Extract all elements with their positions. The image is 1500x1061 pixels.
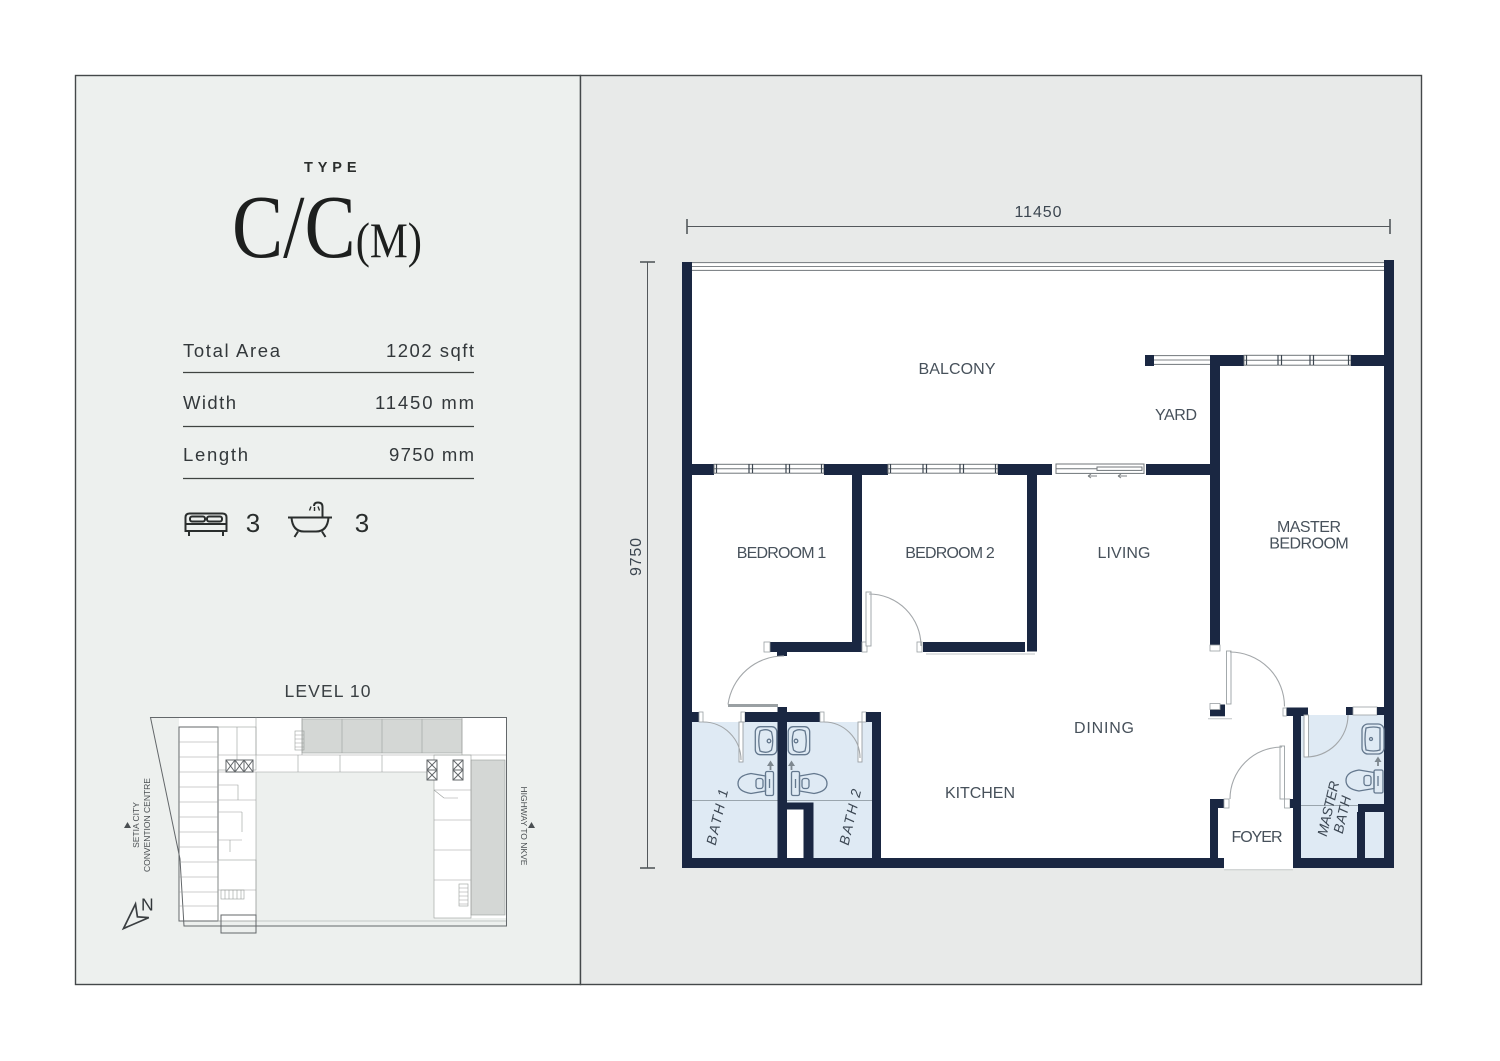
svg-text:TYPE: TYPE xyxy=(304,160,362,176)
svg-text:11450: 11450 xyxy=(1015,204,1062,221)
svg-text:BEDROOM 2: BEDROOM 2 xyxy=(905,545,995,562)
svg-text:CONVENTION CENTRE: CONVENTION CENTRE xyxy=(142,778,152,872)
svg-text:Length: Length xyxy=(183,444,248,465)
svg-text:MASTER: MASTER xyxy=(1277,519,1341,536)
svg-text:Total Area: Total Area xyxy=(183,340,281,361)
svg-text:Width: Width xyxy=(183,392,236,413)
svg-text:9750: 9750 xyxy=(628,538,645,576)
svg-text:HIGHWAY TO NKVE: HIGHWAY TO NKVE xyxy=(519,787,529,866)
svg-text:YARD: YARD xyxy=(1155,407,1197,424)
svg-text:N: N xyxy=(141,895,154,915)
svg-text:DINING: DINING xyxy=(1074,720,1134,737)
svg-text:SETIA CITY: SETIA CITY xyxy=(131,802,141,848)
svg-text:9750 mm: 9750 mm xyxy=(389,444,474,465)
svg-text:BALCONY: BALCONY xyxy=(919,361,996,378)
svg-text:3: 3 xyxy=(246,508,260,538)
svg-text:FOYER: FOYER xyxy=(1232,829,1283,846)
svg-text:LIVING: LIVING xyxy=(1098,545,1151,562)
svg-text:3: 3 xyxy=(355,508,369,538)
svg-text:LEVEL 10: LEVEL 10 xyxy=(285,681,372,701)
svg-text:BEDROOM: BEDROOM xyxy=(1269,536,1349,553)
svg-text:11450 mm: 11450 mm xyxy=(375,392,474,413)
svg-text:BEDROOM 1: BEDROOM 1 xyxy=(737,545,827,562)
svg-text:KITCHEN: KITCHEN xyxy=(945,785,1015,802)
